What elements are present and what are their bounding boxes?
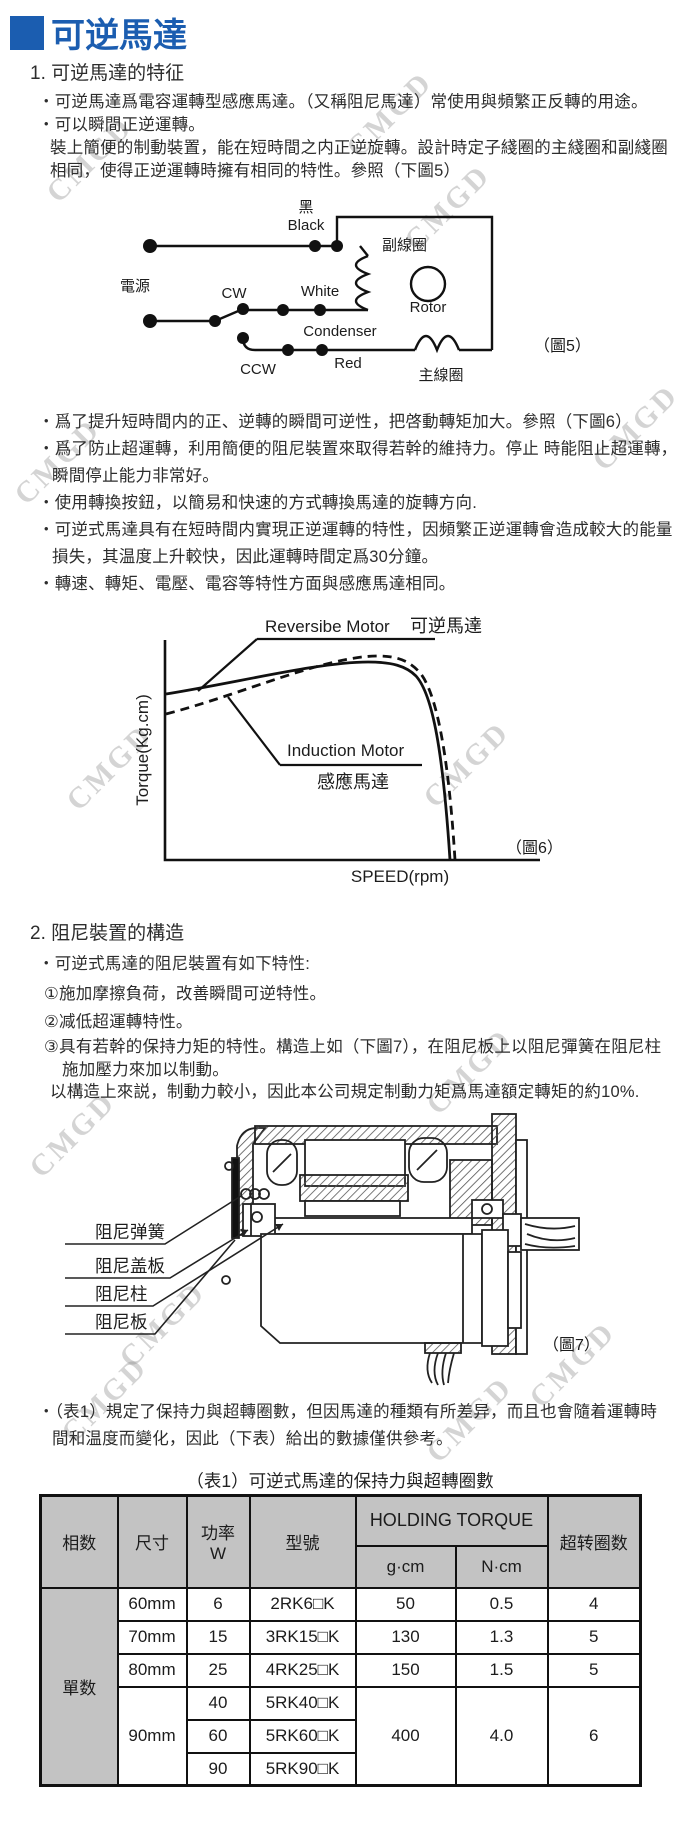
body-line: ①施加摩擦負荷，改善瞬間可逆特性。: [44, 980, 326, 1004]
series2-label: Induction Motor: [287, 741, 405, 760]
shaft: [271, 1218, 472, 1234]
figure7-caption: （圖7）: [543, 1336, 600, 1354]
col-header-size: 尺寸: [118, 1496, 187, 1588]
label-main-coil: 主線圈: [418, 367, 463, 384]
table-row: 80mm 25 4RK25□K 150 1.5 5: [41, 1654, 641, 1687]
table-row: 單数 60mm 6 2RK6□K 50 0.5 4: [41, 1588, 641, 1621]
label-damping-plate: 阻尼板: [95, 1312, 148, 1332]
body-line: ・爲了防止超運轉，利用簡便的阻尼裝置來取得若幹的維持力。停止 時能阻止超運轉，: [38, 435, 677, 459]
label-damping-spring: 阻尼弹簧: [95, 1222, 165, 1242]
col-header-model: 型號: [250, 1496, 356, 1588]
body-line: 施加壓力來加以制動。: [62, 1056, 229, 1080]
figure5-caption: （圖5）: [534, 337, 580, 355]
body-line: ・可逆馬達爲電容運轉型感應馬達。（又稱阻尼馬達）常使用與頻繁正反轉的用途。: [38, 88, 648, 112]
figure6-caption: （圖6）: [506, 839, 563, 857]
body-line: 以構造上來説，制動力較小，因此本公司規定制動力矩爲馬達額定轉矩的約10%.: [50, 1078, 640, 1102]
body-line: ・使用轉換按鈕，以簡易和快速的方式轉換馬達的旋轉方向.: [38, 489, 477, 513]
y-axis-label: Torque(Kg.cm): [133, 694, 152, 805]
label-cw: CW: [222, 285, 248, 302]
rotor-symbol: [411, 267, 445, 301]
label-black: Black: [288, 217, 325, 234]
body-line: ②减低超運轉特性。: [44, 1008, 193, 1032]
col-header-ncm: N·cm: [456, 1546, 548, 1588]
section-marker-square: [10, 16, 44, 50]
series1-label-cn: 可逆馬達: [410, 616, 482, 636]
series2-label-cn: 感應馬達: [317, 771, 389, 792]
body-line: ・爲了提升短時間内的正、逆轉的瞬間可逆性，把啓動轉矩加大。參照（下圖6）: [38, 408, 632, 432]
page-title-text: 可逆馬達: [51, 8, 187, 57]
page-title: 可逆馬達: [10, 8, 187, 57]
label-damping-column: 阻尼柱: [95, 1284, 148, 1304]
aux-coil-symbol: [356, 256, 368, 310]
label-aux-coil: 副線圈: [382, 237, 427, 254]
label-white: White: [301, 283, 339, 300]
spec-table: 相数 尺寸 功率 W 型號 HOLDING TORQUE 超转圈数 g·cm N…: [39, 1494, 642, 1787]
label-damping-cover: 阻尼盖板: [95, 1256, 165, 1276]
cable-bushing: [425, 1343, 461, 1353]
series1-label: Reversibe Motor: [265, 617, 390, 636]
body-line: ・可以瞬間正逆運轉。: [38, 111, 205, 135]
col-header-holding-torque: HOLDING TORQUE: [356, 1496, 548, 1546]
table-row: 90mm 40 5RK40□K 400 4.0 6: [41, 1687, 641, 1720]
section1-heading: 1. 可逆馬達的特征: [30, 58, 184, 85]
rotor-lamination: [305, 1201, 400, 1216]
figure5-circuit-diagram: 黑 Black 電源 CW White Condenser Red CCW 副線…: [110, 198, 580, 393]
figure7-motor-cross-section: 阻尼弹簧 阻尼盖板 阻尼柱 阻尼板 （圖7）: [65, 1100, 625, 1390]
cell-phase: 單数: [41, 1588, 118, 1786]
rotor: [300, 1175, 408, 1201]
body-line: ・（表1）規定了保持力與超轉圈數，但因馬達的種類有所差异，而且也會隨着運轉時: [38, 1398, 657, 1422]
label-black-cn: 黑: [298, 199, 313, 216]
body-line: ・轉速、轉矩、電壓、電容等特性方面與感應馬達相同。: [38, 570, 456, 594]
label-condenser: Condenser: [303, 323, 376, 340]
col-header-gcm: g·cm: [356, 1546, 456, 1588]
body-line: ・可逆式馬達的阻尼裝置有如下特性:: [38, 950, 310, 974]
document-page: CMGD CMGD CMGD CMGD CMGD CMGD CMGD CMGD …: [0, 0, 680, 1827]
body-line: 瞬間停止能力非常好。: [52, 462, 219, 486]
col-header-phase: 相数: [41, 1496, 118, 1588]
figure6-torque-speed-chart: Reversibe Motor 可逆馬達 Induction Motor 感應馬…: [120, 598, 580, 890]
label-power: 電源: [120, 278, 150, 295]
col-header-overrun: 超转圈数: [548, 1496, 641, 1588]
label-ccw: CCW: [240, 361, 277, 378]
label-red: Red: [334, 355, 362, 372]
table-row: 70mm 15 3RK15□K 130 1.3 5: [41, 1621, 641, 1654]
body-line: ③具有若幹的保持力矩的特性。構造上如（下圖7），在阻尼板上以阻尼彈簧在阻尼柱: [44, 1033, 661, 1057]
section2-heading: 2. 阻尼裝置的構造: [30, 918, 184, 945]
label-rotor: Rotor: [410, 299, 447, 316]
col-header-power: 功率 W: [187, 1496, 250, 1588]
body-line: 間和温度而變化，因此（下表）給出的數據僅供參考。: [52, 1425, 453, 1449]
body-line: 損失，其温度上升較快，因此運轉時間定爲30分鐘。: [52, 543, 438, 567]
lead-wires: [427, 1353, 454, 1385]
table1-title: （表1）可逆式馬達的保持力與超轉圈數: [0, 1468, 680, 1493]
body-line: ・可逆式馬達具有在短時間内實現正逆運轉的特性，因頻繁正逆運轉會造成較大的能量: [38, 516, 673, 540]
curve-reversible-motor: [166, 662, 450, 860]
body-line: 相同，使得正逆運轉時擁有相同的特性。參照（下圖5）: [50, 157, 460, 181]
body-line: 裝上簡便的制動裝置，能在短時間之内正逆旋轉。設計時定子綫圈的主綫圈和副綫圈: [50, 134, 668, 158]
x-axis-label: SPEED(rpm): [351, 867, 449, 886]
gearbox-case: [261, 1234, 482, 1343]
main-coil-symbol: [415, 336, 459, 350]
